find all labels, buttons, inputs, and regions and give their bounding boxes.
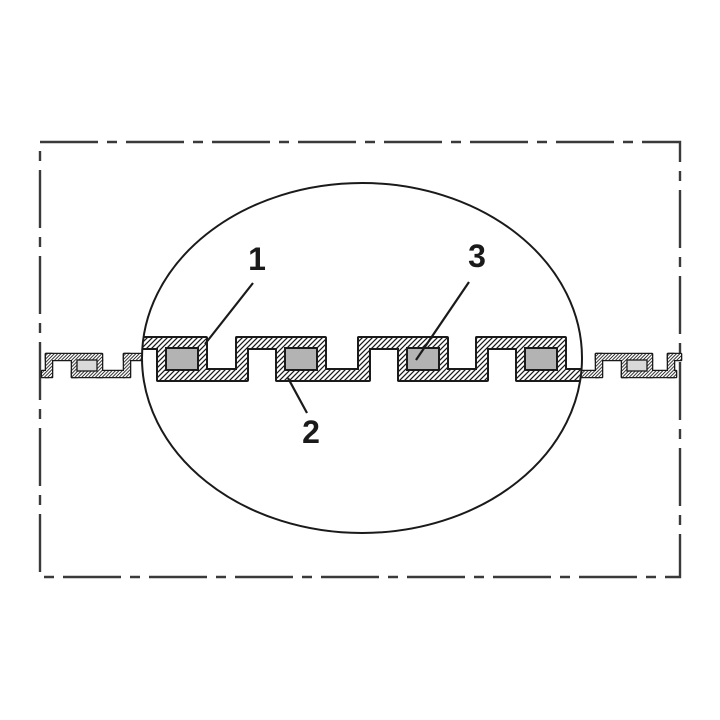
spiral-wire-small [77, 360, 97, 371]
callout-3-label: 3 [468, 238, 486, 274]
spiral-wire-small [627, 360, 647, 371]
spiral-wire-large [285, 348, 317, 370]
hose-profile-small-right [570, 354, 681, 377]
callout-2-label: 2 [302, 414, 320, 450]
hose-profile-diagram: 1 2 3 [0, 0, 720, 720]
spiral-wire-large [525, 348, 557, 370]
hose-profile-large [118, 338, 599, 380]
diagram-page: 1 2 3 [0, 0, 720, 720]
callout-1-label: 1 [248, 241, 266, 277]
spiral-wire-large [166, 348, 198, 370]
